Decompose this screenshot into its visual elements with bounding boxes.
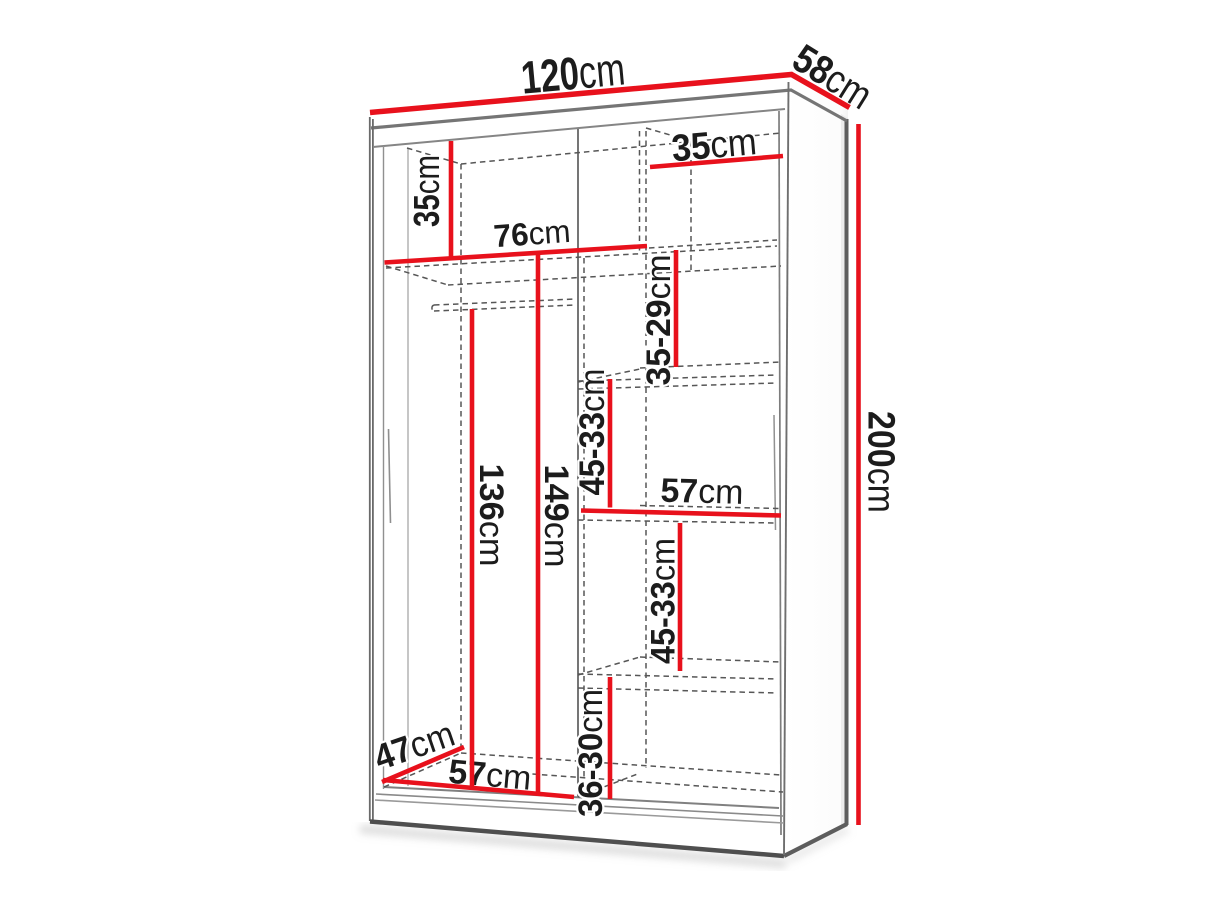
svg-text:200cm: 200cm [859, 411, 901, 513]
svg-text:45-33cm: 45-33cm [573, 369, 612, 496]
svg-text:76cm: 76cm [492, 213, 571, 254]
svg-text:35cm: 35cm [406, 155, 447, 227]
svg-text:57cm: 57cm [660, 472, 744, 512]
svg-text:35-29cm: 35-29cm [640, 255, 678, 386]
svg-text:45-33cm: 45-33cm [644, 538, 682, 664]
svg-text:36-30cm: 36-30cm [572, 689, 610, 817]
svg-text:136cm: 136cm [472, 464, 510, 567]
svg-text:149cm: 149cm [537, 465, 575, 568]
